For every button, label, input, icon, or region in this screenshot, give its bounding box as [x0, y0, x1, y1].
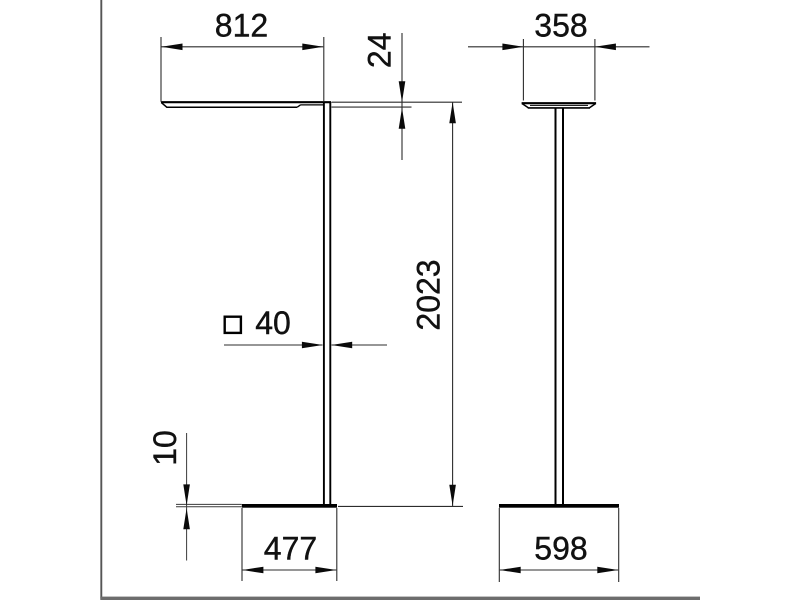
svg-text:812: 812 — [215, 7, 268, 43]
svg-text:40: 40 — [255, 305, 291, 341]
svg-text:598: 598 — [534, 530, 587, 566]
svg-text:24: 24 — [362, 33, 398, 69]
svg-text:2023: 2023 — [411, 259, 447, 330]
svg-text:358: 358 — [534, 7, 587, 43]
svg-text:477: 477 — [264, 530, 317, 566]
svg-text:10: 10 — [147, 430, 183, 466]
